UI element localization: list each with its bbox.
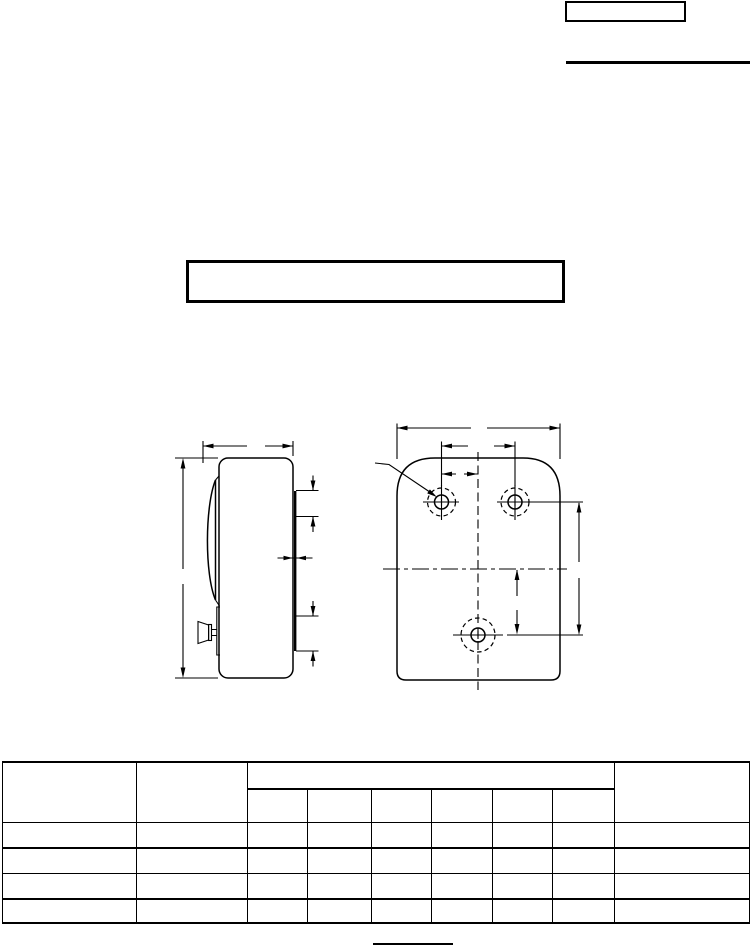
subheader-cell [553,789,615,822]
side-view [175,441,319,678]
dimension-lens-offset-bottom [296,601,319,667]
dimension-top-to-bottom-hole [577,502,582,635]
table-cell [248,899,308,923]
mounting-hole-top-left [423,485,459,520]
parts-table [2,761,750,924]
table-cell [432,822,493,848]
table-cell [493,822,553,848]
table-cell [372,873,432,899]
sheet-number-underline [373,943,453,945]
table-cell [372,822,432,848]
subheader-cell [308,789,372,822]
table-row [3,822,750,848]
header-col1 [3,762,137,822]
mounting-hole-top-right [497,485,583,520]
table-cell [248,848,308,873]
table-cell [432,899,493,923]
table-cell [553,822,615,848]
drawing-sheet [0,0,752,950]
dimension-hole-to-center [442,472,478,477]
table-cell [493,848,553,873]
table-cell [308,873,372,899]
table-cell [3,873,137,899]
table-header-row [3,762,750,789]
table-cell [615,873,750,899]
table-cell [432,848,493,873]
subheader-cell [372,789,432,822]
table-cell [615,899,750,923]
dimension-lens-offset-top [296,476,319,533]
table-cell [248,822,308,848]
table-row [3,873,750,899]
table-cell [372,848,432,873]
table-cell [3,899,137,923]
table-cell [3,822,137,848]
parts-table-wrap [2,761,750,924]
table-cell [493,899,553,923]
table-cell [372,899,432,923]
table-cell [553,899,615,923]
table-cell [432,873,493,899]
table-cell [615,822,750,848]
mounting-hole-bottom [453,618,583,652]
lamp-body-outline [219,458,293,678]
header-col2 [137,762,248,822]
header-group [248,762,615,789]
table-row [3,848,750,873]
table-cell [137,822,248,848]
table-cell [615,848,750,873]
table-cell [137,899,248,923]
dimension-depth [203,441,293,463]
table-cell [137,848,248,873]
subheader-cell [432,789,493,822]
lens-profile [207,476,219,606]
table-cell [3,848,137,873]
header-last [615,762,750,822]
table-cell [248,873,308,899]
table-cell [493,873,553,899]
table-row [3,899,750,923]
subheader-cell [493,789,553,822]
dimension-center-to-bottom-hole [515,570,520,635]
table-cell [308,848,372,873]
rear-view [375,424,583,691]
table-cell [553,848,615,873]
table-cell [137,873,248,899]
table-cell [308,899,372,923]
table-cell [553,873,615,899]
terminal-stud [198,607,220,655]
table-cell [308,822,372,848]
subheader-cell [248,789,308,822]
table-body [3,822,750,923]
